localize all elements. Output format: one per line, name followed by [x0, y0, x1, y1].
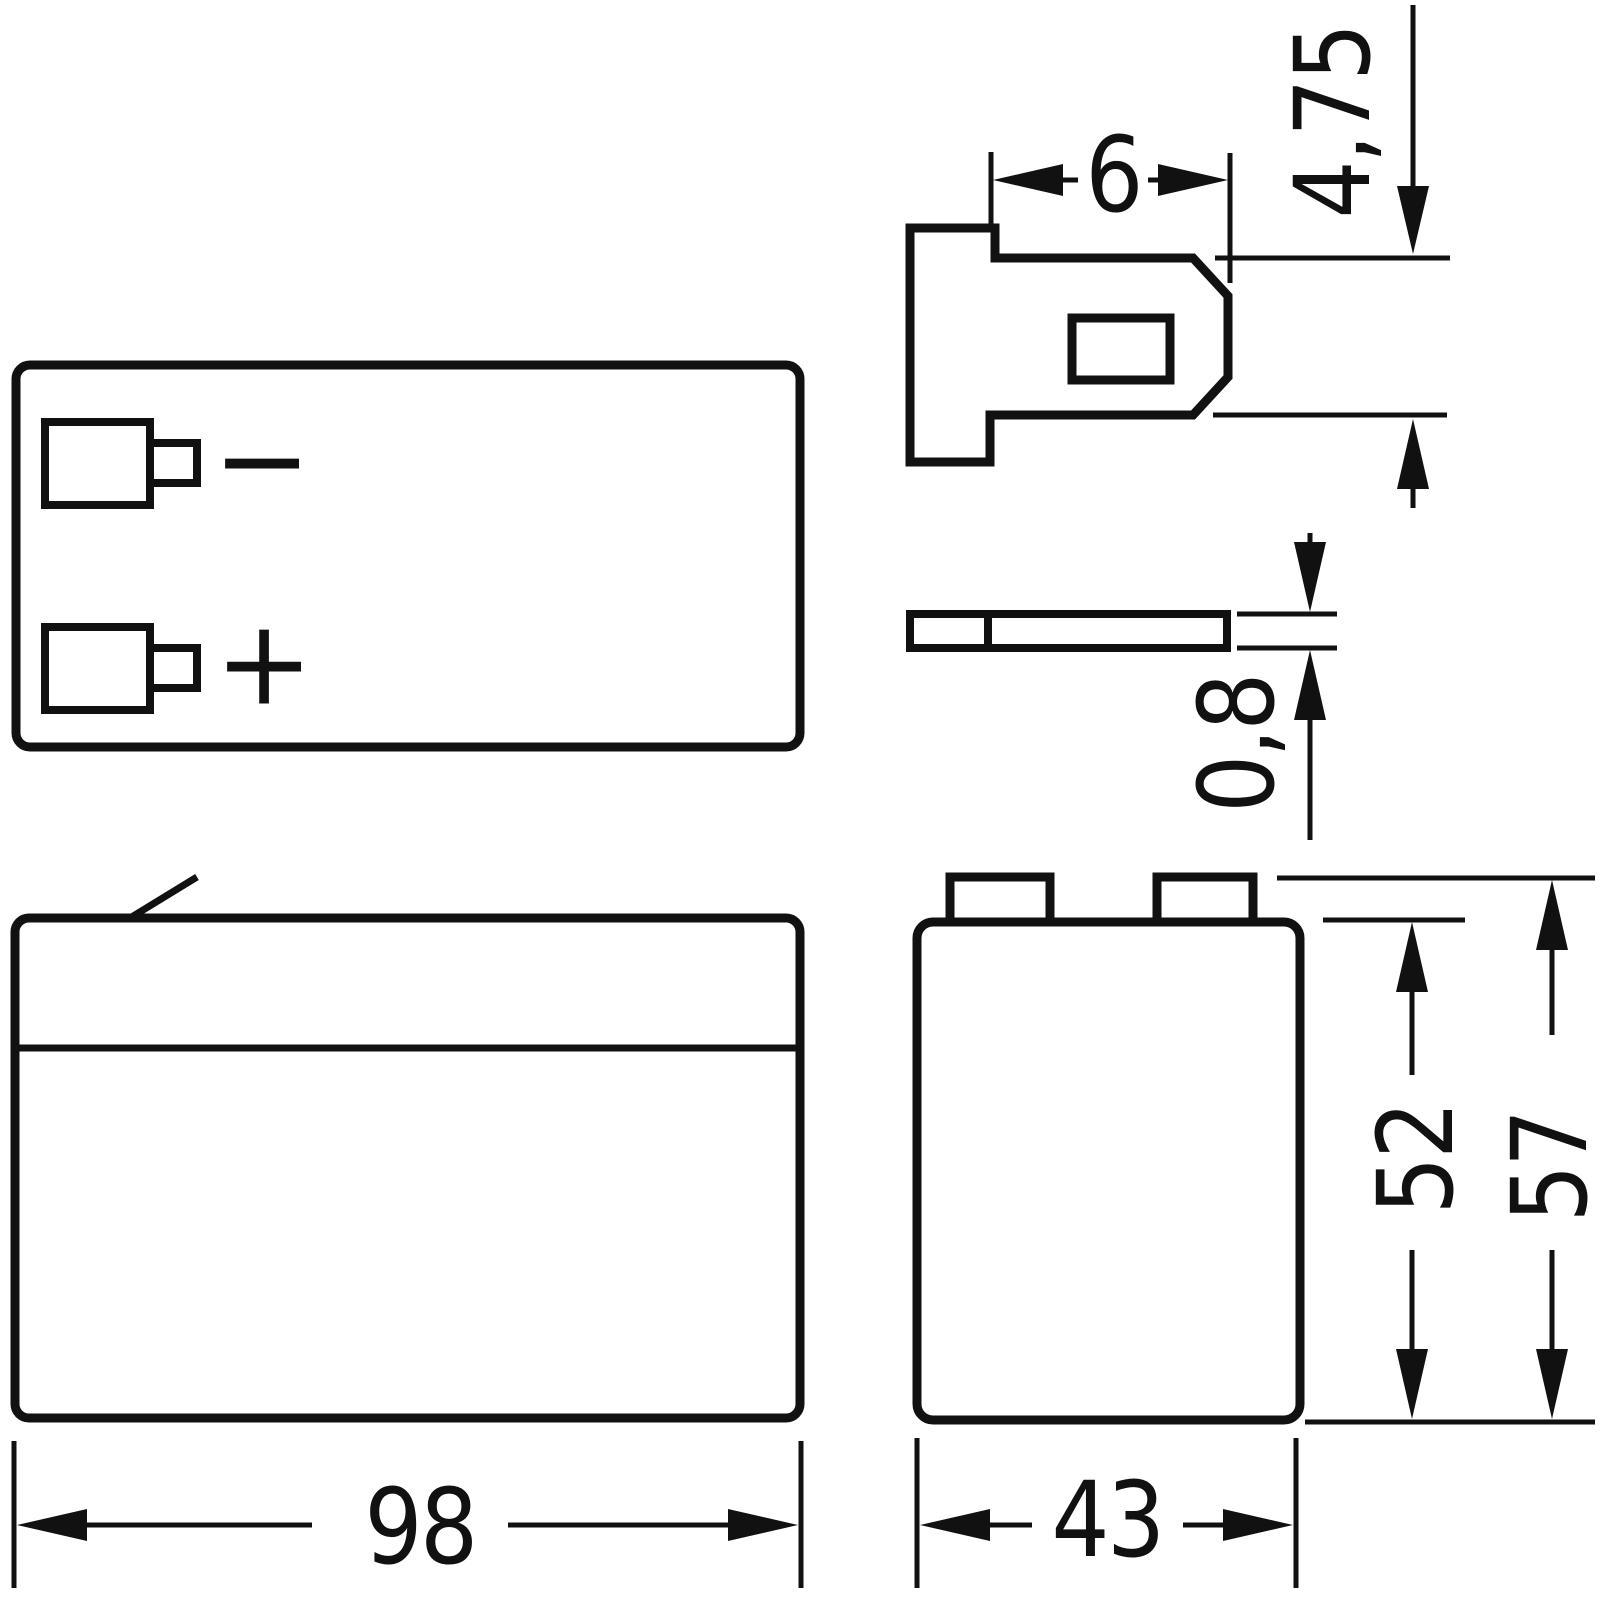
drawing-linework: [0, 0, 1600, 1600]
dim475-arrow-down: [1397, 186, 1429, 254]
dim43-arrow-right: [1223, 1509, 1293, 1541]
side-view-outline: [917, 922, 1300, 1420]
dim-label-tab-height: 4,75: [1272, 25, 1394, 218]
tab-blade-outline: [910, 614, 1227, 648]
front-view-outline: [15, 918, 800, 1418]
terminal-detail-hole: [1072, 318, 1170, 380]
technical-drawing-canvas: − + 6 4,75 0,8 98 43 52 57: [0, 0, 1600, 1600]
dim98-arrow-left: [17, 1509, 87, 1541]
dim08-arrow-up: [1294, 650, 1326, 720]
dim-label-tab-width: 6: [1085, 114, 1141, 236]
dim-label-battery-width: 43: [1051, 1459, 1162, 1581]
negative-terminal-tab: [150, 443, 197, 483]
negative-terminal-body: [45, 422, 150, 505]
dim57-arrow-down: [1536, 1349, 1568, 1419]
dim-label-tab-thickness: 0,8: [1176, 675, 1298, 813]
dim6-arrow-left: [993, 164, 1063, 196]
dim08-arrow-down: [1294, 542, 1326, 612]
dim475-arrow-up: [1397, 419, 1429, 489]
dim-label-overall-height: 57: [1489, 1111, 1600, 1222]
dim52-arrow-down: [1396, 1349, 1428, 1419]
dim6-arrow-right: [1158, 164, 1228, 196]
positive-polarity-label: +: [215, 593, 314, 731]
dim57-arrow-up: [1536, 880, 1568, 950]
dim-label-battery-length: 98: [364, 1466, 475, 1588]
dim-label-case-height: 52: [1355, 1103, 1477, 1214]
dim43-arrow-left: [920, 1509, 990, 1541]
dim52-arrow-up: [1396, 922, 1428, 992]
negative-polarity-label: −: [213, 390, 312, 528]
dim98-arrow-right: [728, 1509, 798, 1541]
front-view-surface-tick: [130, 877, 197, 918]
positive-terminal-body: [45, 627, 150, 710]
positive-terminal-tab: [150, 648, 197, 688]
